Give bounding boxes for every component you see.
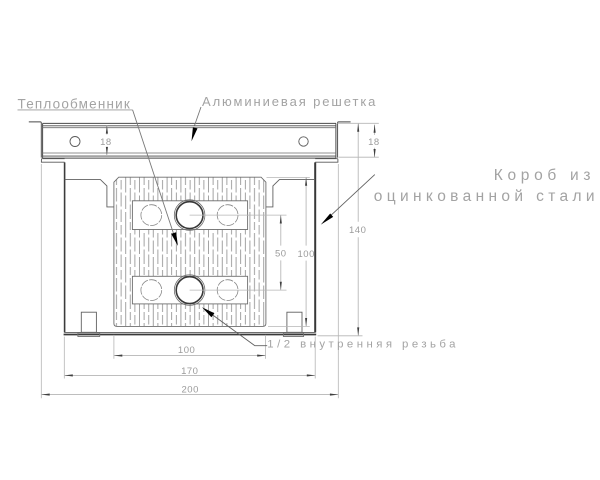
svg-text:140: 140 (349, 225, 366, 236)
svg-text:оцинкованной стали: оцинкованной стали (374, 188, 599, 205)
svg-text:100: 100 (178, 345, 195, 356)
svg-text:100: 100 (298, 249, 315, 260)
svg-text:Теплообменник: Теплообменник (18, 97, 132, 112)
svg-text:Алюминиевая решетка: Алюминиевая решетка (202, 94, 377, 109)
svg-text:170: 170 (181, 366, 198, 377)
svg-text:200: 200 (182, 385, 199, 396)
svg-text:18: 18 (100, 137, 112, 148)
svg-text:1/2 внутренняя резьба: 1/2 внутренняя резьба (267, 339, 459, 351)
svg-text:50: 50 (275, 249, 287, 260)
svg-text:18: 18 (368, 137, 380, 148)
svg-text:Короб из: Короб из (494, 167, 595, 184)
